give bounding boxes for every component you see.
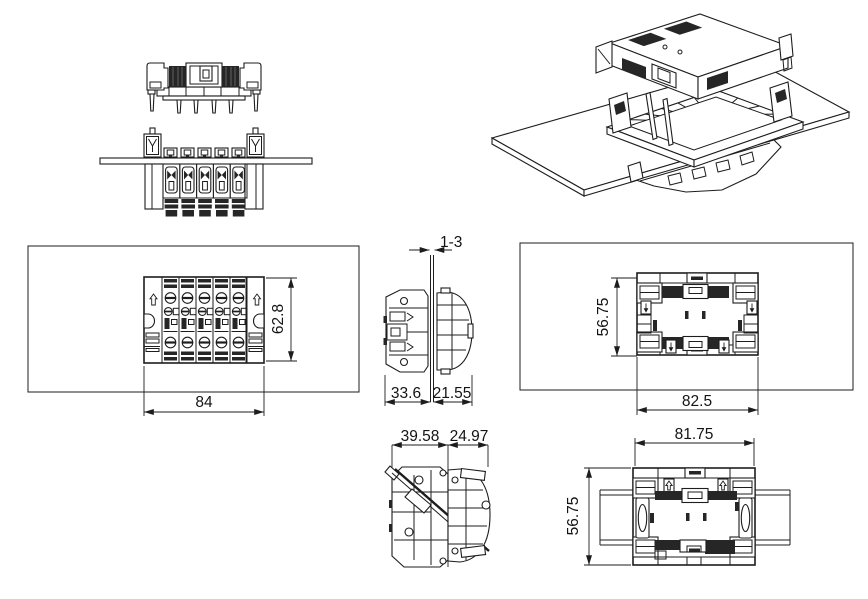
isometric-exploded-view xyxy=(492,14,849,196)
latch-open-side-view: 39.58 24.97 xyxy=(385,428,490,567)
panel-section-lines xyxy=(431,255,434,402)
drawing-canvas: 84 62.8 1-3 33.6 xyxy=(0,0,868,599)
dim-label-frame-height: 56.75 xyxy=(595,298,612,337)
dim-rail-height: 56.75 xyxy=(565,468,631,565)
front-housing-side xyxy=(384,290,429,372)
rail-mounted-body xyxy=(633,468,755,565)
dim-rear-depth: 21.55 xyxy=(433,375,472,406)
panel-latch xyxy=(144,128,161,157)
dim-cutout-height: 62.8 xyxy=(266,278,297,361)
technical-drawing-sheet: 84 62.8 1-3 33.6 xyxy=(0,0,868,599)
dim-label-frame-width: 82.5 xyxy=(682,393,712,410)
panel-latch xyxy=(247,128,264,157)
solder-pin xyxy=(150,94,154,111)
dim-label-cutout-height: 62.8 xyxy=(270,304,287,334)
dim-panel-thickness: 1-3 xyxy=(409,234,462,251)
dim-rear-depth-latched: 24.97 xyxy=(448,428,488,467)
dim-label-panel-thickness: 1-3 xyxy=(440,234,462,251)
solder-pin xyxy=(194,100,198,113)
din-rail-rear-view: 81.75 56.75 xyxy=(565,426,790,565)
panel-frame-rear-view: 56.75 82.5 xyxy=(520,243,853,415)
panel-section-side-view: 1-3 33.6 21.55 xyxy=(384,234,474,406)
rear-housing-latched xyxy=(448,469,490,562)
dim-label-rail-height: 56.75 xyxy=(565,497,582,536)
solder-pin xyxy=(229,100,233,113)
front-elevation-view xyxy=(147,63,261,113)
panel-cutout-top-view: 84 62.8 xyxy=(28,246,359,416)
panel-mounted-front-view xyxy=(100,128,312,217)
dim-label-rear-depth-latched: 24.97 xyxy=(450,428,489,445)
dim-front-depth: 33.6 xyxy=(385,375,431,406)
frame-latch-tower xyxy=(770,82,792,122)
dim-label-front-depth: 33.6 xyxy=(391,385,421,402)
dim-cutout-width: 84 xyxy=(144,366,264,416)
dim-frame-width: 82.5 xyxy=(637,357,758,415)
dim-label-rail-width: 81.75 xyxy=(675,426,714,443)
dim-label-rear-depth: 21.55 xyxy=(433,385,472,402)
solder-pin xyxy=(177,100,181,113)
dim-front-depth-latched: 39.58 xyxy=(392,428,448,468)
dim-frame-height: 56.75 xyxy=(595,278,637,356)
frame-rear-body xyxy=(637,273,758,355)
solder-pin xyxy=(254,94,258,111)
dim-label-cutout-width: 84 xyxy=(195,394,213,411)
dim-rail-width: 81.75 xyxy=(635,426,754,466)
solder-pin xyxy=(212,100,216,113)
rear-housing-side xyxy=(437,288,473,374)
dim-label-front-depth-latched: 39.58 xyxy=(401,428,440,445)
mounting-panel xyxy=(100,158,312,164)
